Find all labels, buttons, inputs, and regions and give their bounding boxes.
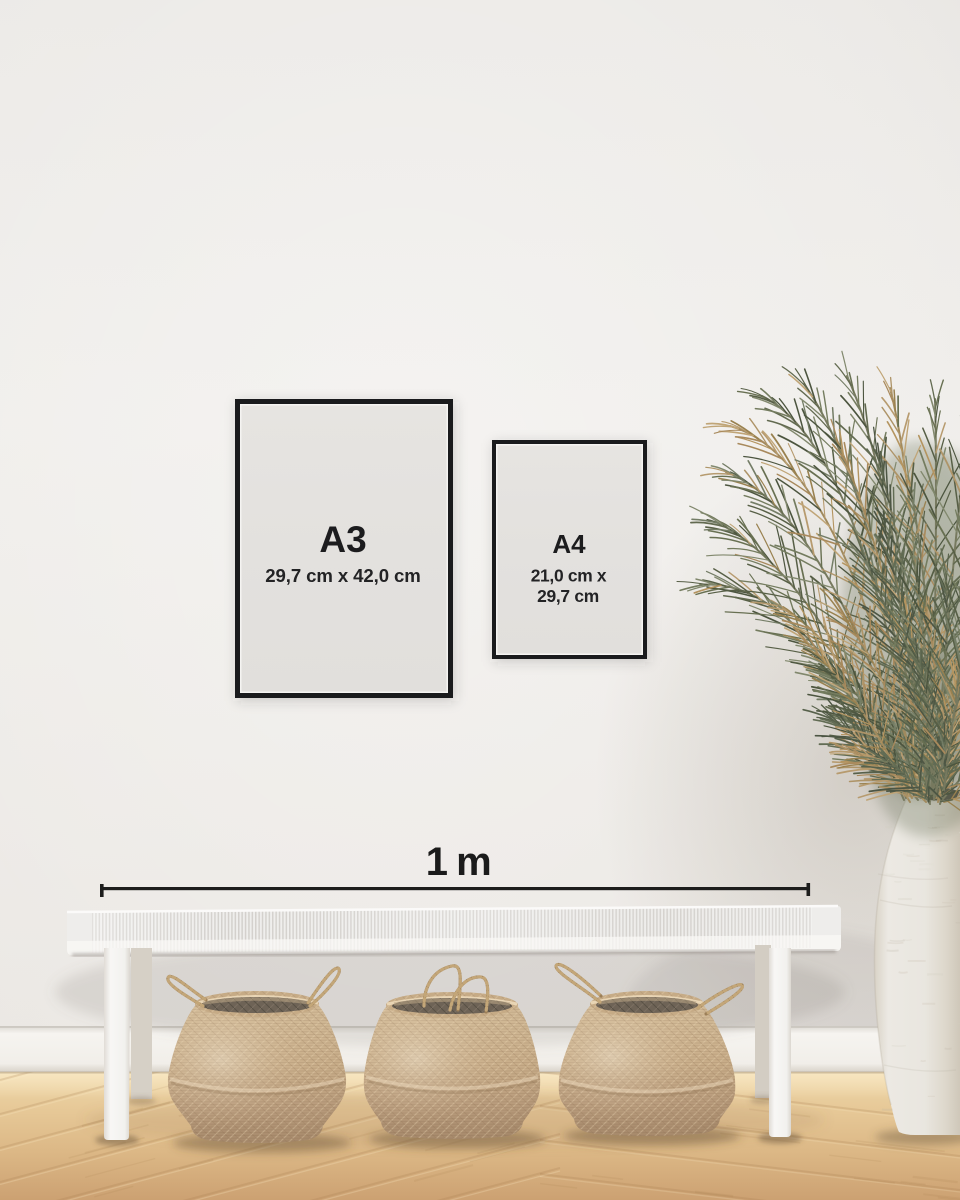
svg-text:1 m: 1 m [426, 840, 490, 884]
svg-text:21,0 cm x: 21,0 cm x [531, 566, 607, 586]
svg-text:29,7 cm: 29,7 cm [537, 586, 599, 606]
svg-text:29,7 cm x 42,0 cm: 29,7 cm x 42,0 cm [265, 565, 420, 586]
svg-text:A4: A4 [552, 529, 586, 559]
svg-text:A3: A3 [319, 519, 366, 560]
